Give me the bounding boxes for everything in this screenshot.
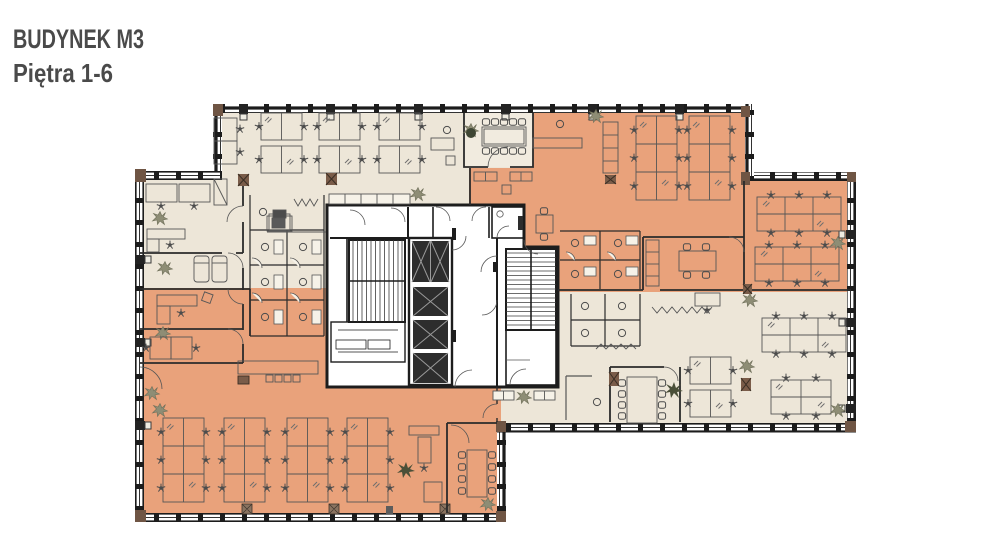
svg-text:BUDYNEK M3: BUDYNEK M3 [13, 24, 144, 54]
svg-text:Piętra 1-6: Piętra 1-6 [13, 58, 113, 88]
